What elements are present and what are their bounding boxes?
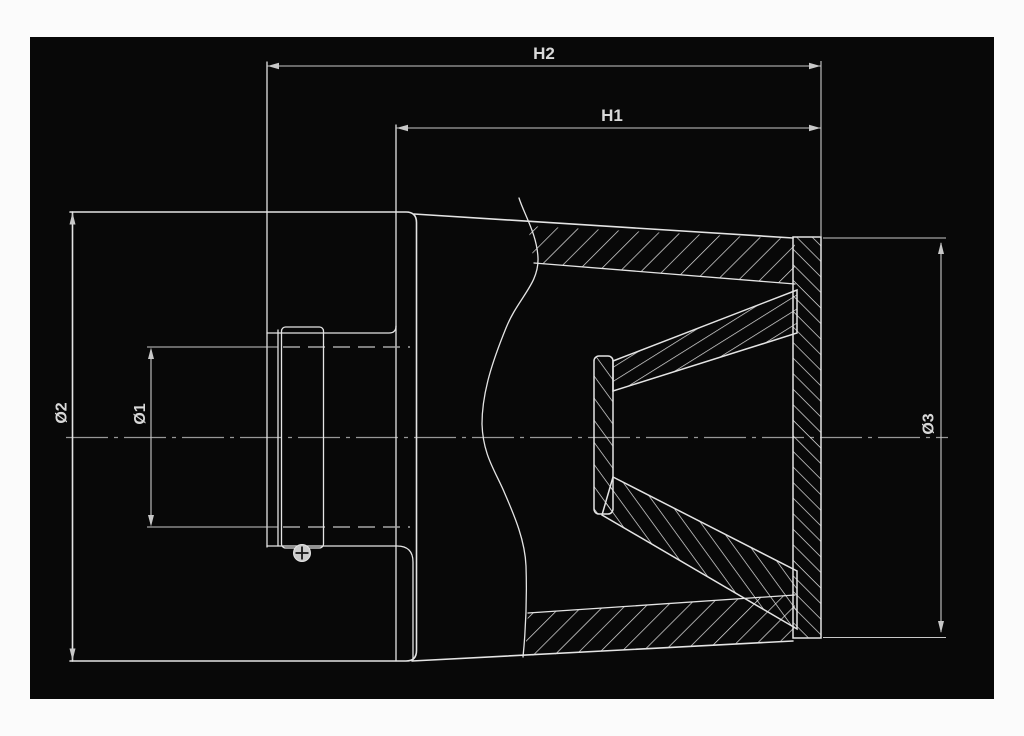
dimension-label-h1: H1 [601, 106, 623, 125]
dimension-label-d3: Ø3 [921, 413, 938, 434]
drawing-canvas [30, 37, 994, 699]
dimension-label-h2: H2 [533, 44, 555, 63]
clamp-screw [294, 545, 311, 562]
technical-drawing: H2 H1 Ø2 Ø1 Ø3 [0, 0, 1024, 736]
outlet-flange [793, 237, 821, 638]
dimension-label-d2: Ø2 [54, 402, 71, 423]
drawing-page: H2 H1 Ø2 Ø1 Ø3 [0, 0, 1024, 736]
dimension-label-d1: Ø1 [132, 403, 149, 424]
